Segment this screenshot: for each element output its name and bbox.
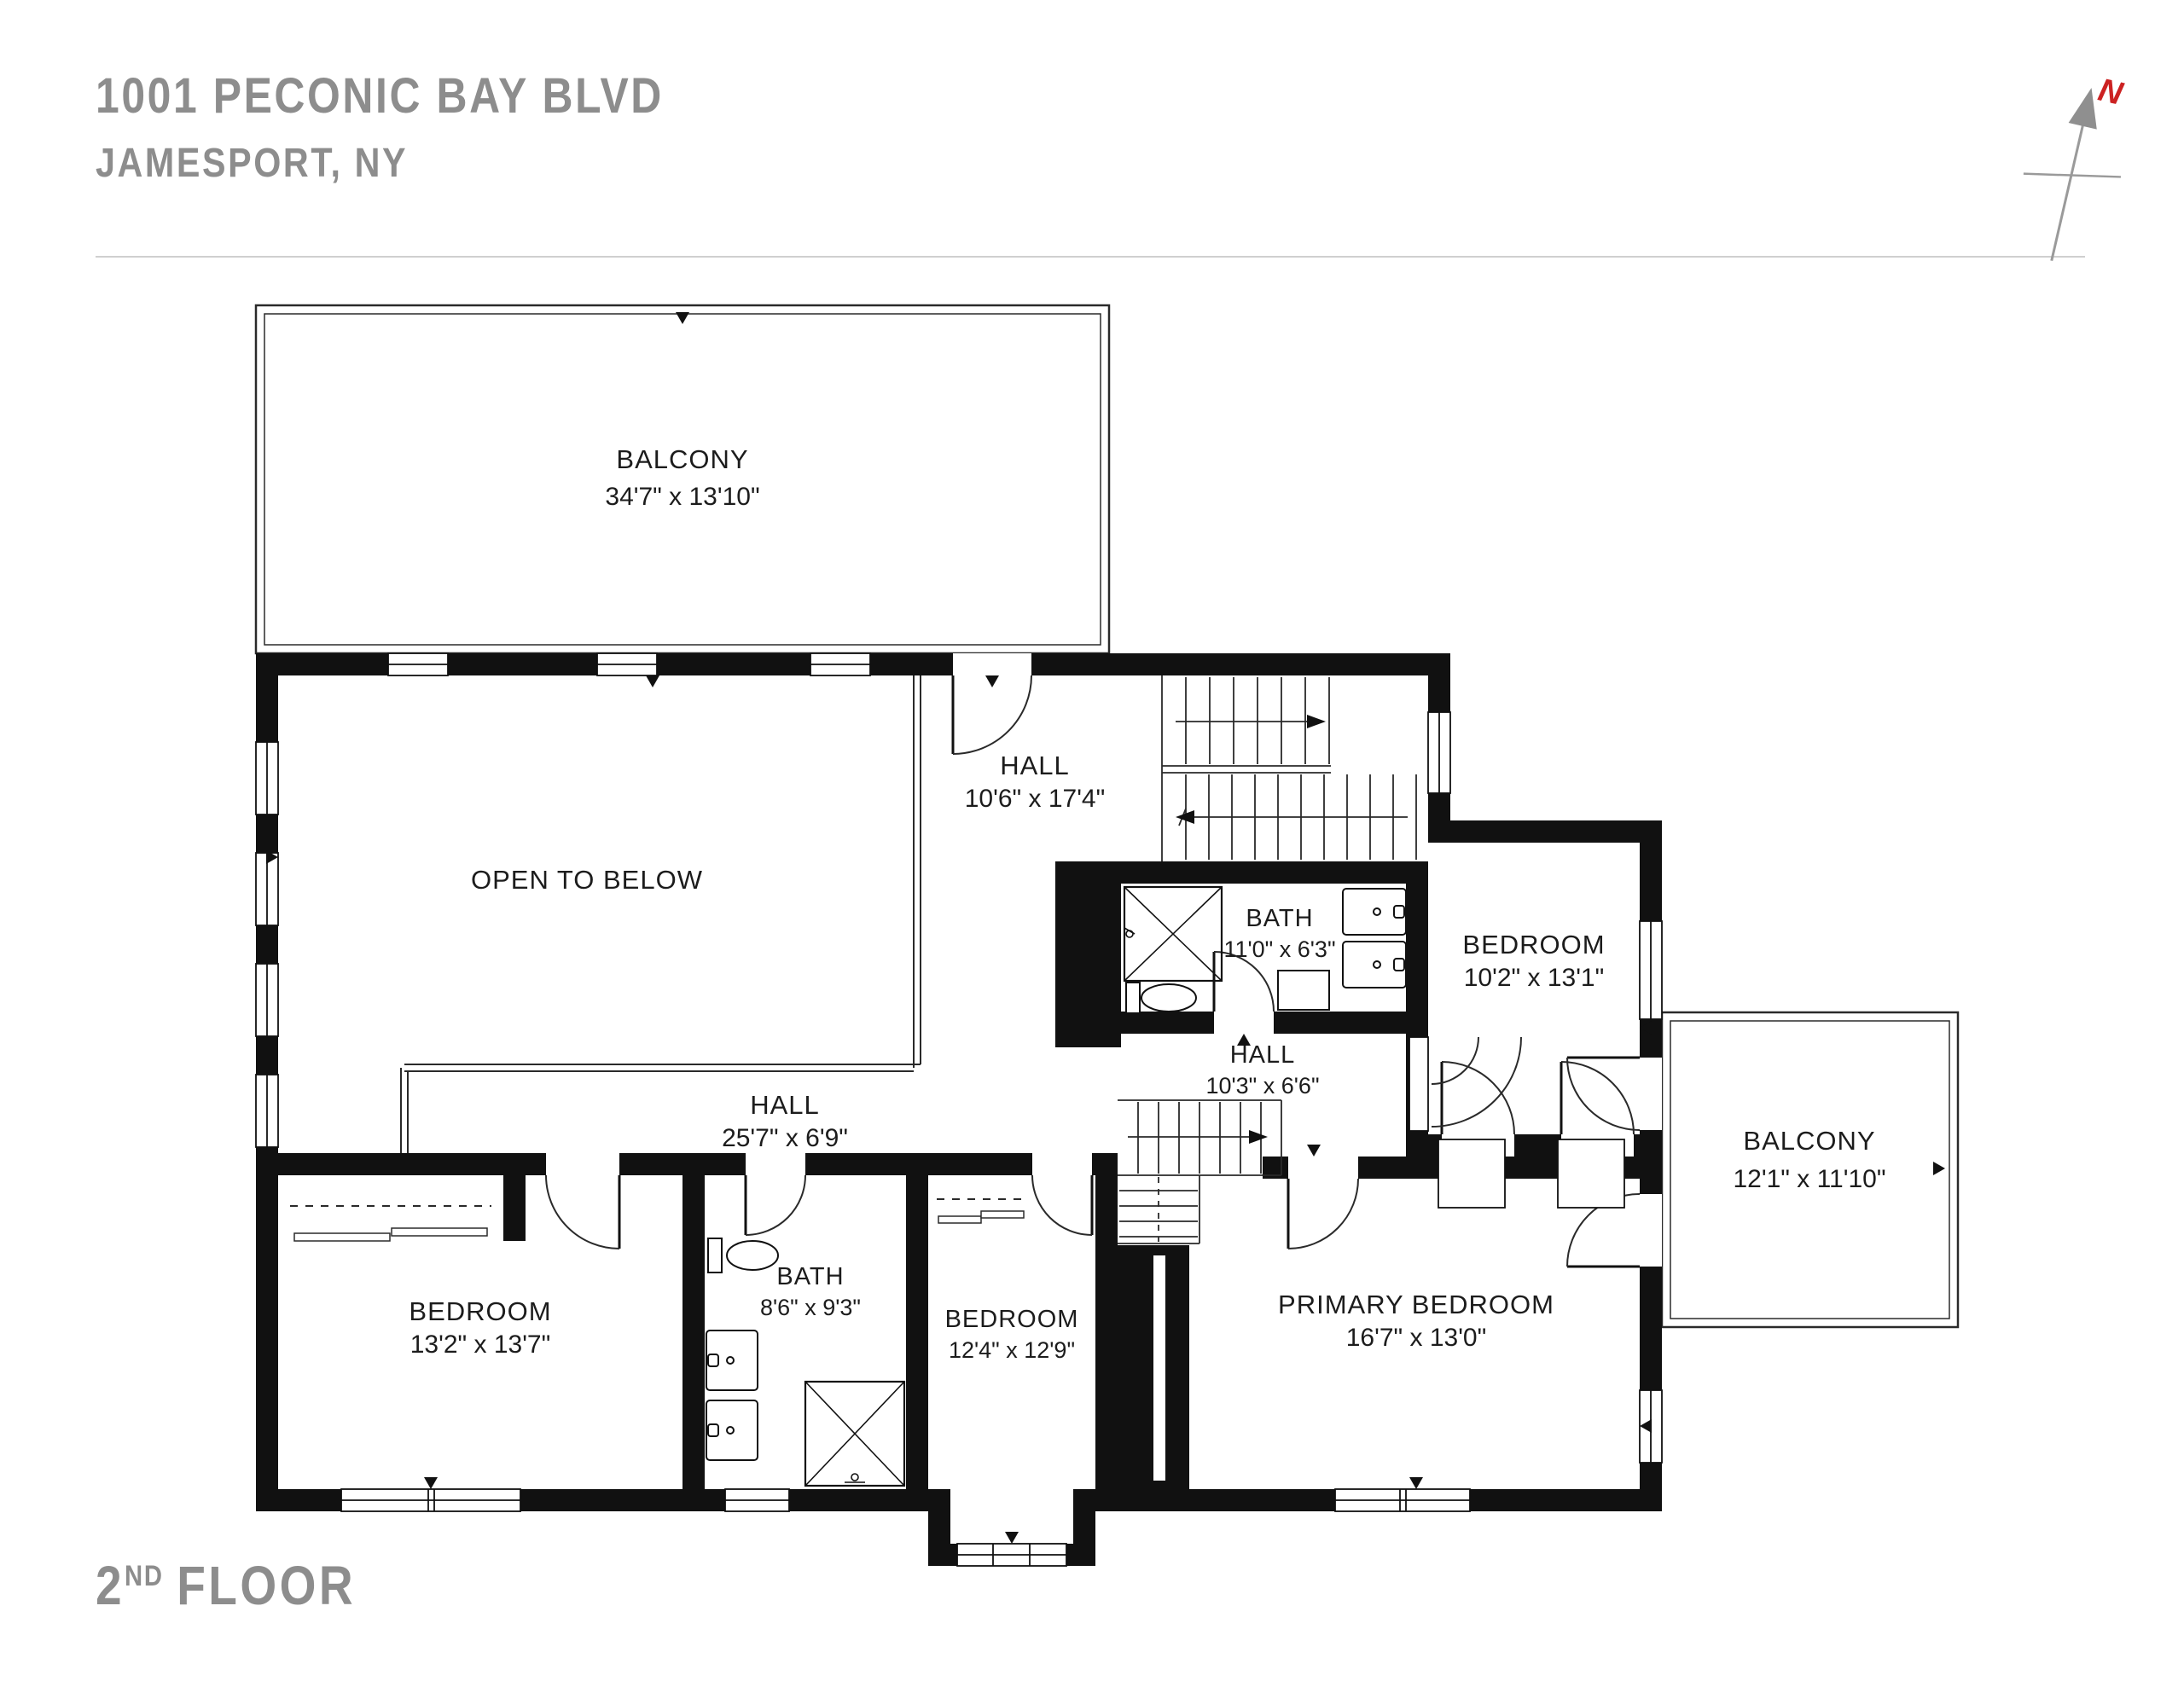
floor-plan-svg: BALCONY 34'7" x 13'10" HALL 10'6" x 17'4… (0, 0, 2184, 1687)
chase-slit (1153, 1255, 1165, 1481)
floor-plan-page: 1001 PECONIC BAY BLVD JAMESPORT, NY N 2N… (0, 0, 2184, 1687)
balcony-top-outline (256, 305, 1109, 653)
room-label-primary-bedroom-dims: 16'7" x 13'0" (1346, 1324, 1487, 1352)
room-label-bedroom-left-name: BEDROOM (409, 1296, 551, 1326)
room-label-balcony-right-dims: 12'1" x 11'10" (1734, 1165, 1886, 1193)
toilet-upper-icon (1126, 983, 1196, 1013)
room-label-bath-lower-name: BATH (776, 1263, 844, 1290)
sinks-lower-icon (706, 1330, 758, 1460)
windows (256, 653, 1662, 1566)
room-label-bath-upper-dims: 11'0" x 6'3" (1223, 936, 1335, 962)
closet-left-bedroom (290, 1206, 491, 1241)
stairs-upper (1162, 675, 1416, 861)
toilet-lower-icon (708, 1238, 778, 1272)
room-label-hall-upper-name: HALL (1000, 751, 1070, 780)
shower-lower-icon (805, 1382, 904, 1486)
room-label-bedroom-left-dims: 13'2" x 13'7" (410, 1330, 551, 1359)
room-label-bedroom-middle-name: BEDROOM (945, 1306, 1079, 1333)
room-label-bath-lower-dims: 8'6" x 9'3" (760, 1295, 861, 1320)
room-label-balcony-top-name: BALCONY (616, 444, 748, 474)
room-label-open-to-below: OPEN TO BELOW (471, 865, 703, 895)
stairs-down-arrowhead (1249, 1130, 1268, 1144)
room-label-balcony-right-name: BALCONY (1743, 1126, 1875, 1156)
room-label-bedroom-middle-dims: 12'4" x 12'9" (949, 1337, 1075, 1363)
room-label-balcony-top-dims: 34'7" x 13'10" (605, 483, 759, 511)
room-label-bedroom-ne-name: BEDROOM (1462, 930, 1605, 959)
stairs-upper-arrowhead (1307, 715, 1326, 728)
closet-middle-bedroom (937, 1199, 1024, 1223)
room-label-primary-bedroom-name: PRIMARY BEDROOM (1278, 1290, 1554, 1319)
room-label-bedroom-ne-dims: 10'2" x 13'1" (1464, 964, 1605, 992)
stairs-down (1118, 1100, 1281, 1244)
room-label-hall-upper-dims: 10'6" x 17'4" (965, 785, 1106, 813)
room-label-hall-lower-dims: 25'7" x 6'9" (722, 1124, 848, 1152)
room-label-bath-upper-name: BATH (1246, 905, 1313, 932)
room-label-hall-lower-name: HALL (750, 1090, 820, 1120)
open-to-below-railing (401, 675, 921, 1153)
shower-upper-icon (1124, 887, 1222, 981)
room-label-hall-middle-name: HALL (1230, 1041, 1296, 1069)
room-label-hall-middle-dims: 10'3" x 6'6" (1205, 1073, 1319, 1099)
